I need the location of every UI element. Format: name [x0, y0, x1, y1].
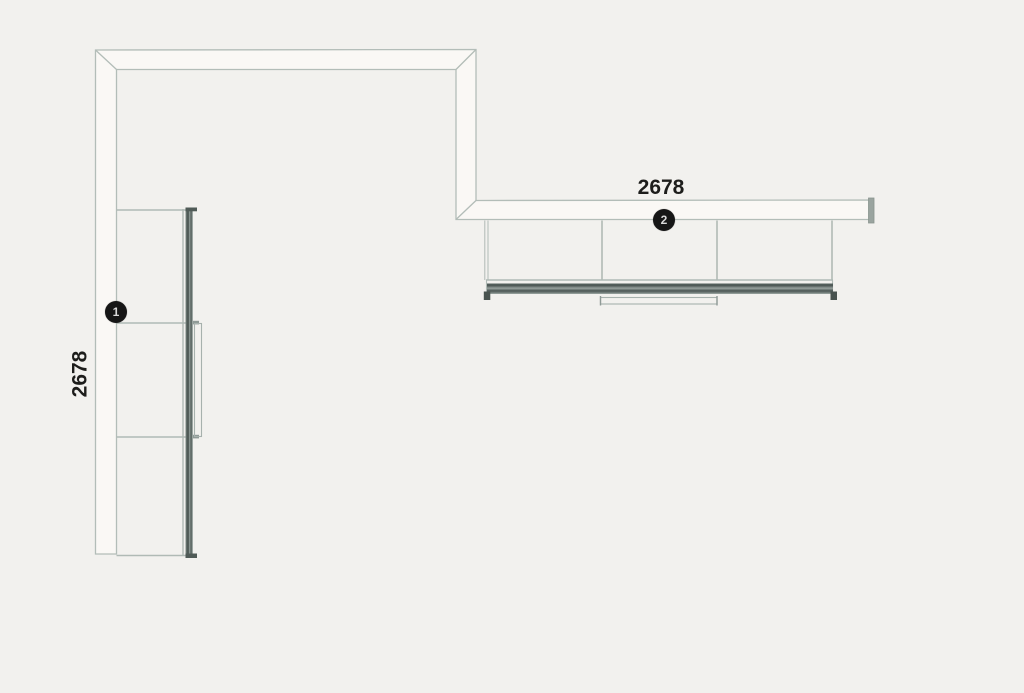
dimension-label-left: 2678	[70, 351, 91, 398]
left-unit	[117, 208, 202, 559]
frame-band-outline	[96, 50, 874, 555]
frame-miter-lines	[96, 50, 477, 220]
right-unit	[484, 221, 837, 306]
right-end-cap	[869, 198, 875, 223]
position-marker-1: 1	[105, 301, 127, 323]
right-unit-bracket	[601, 296, 718, 306]
dimension-label-top: 2678	[638, 177, 685, 198]
position-marker-2: 2	[653, 209, 675, 231]
left-unit-bracket	[195, 324, 202, 437]
right-unit-rail	[487, 284, 833, 295]
wardrobe-plan-drawing	[0, 0, 1024, 693]
frame-band	[96, 50, 875, 555]
left-unit-rail	[186, 208, 194, 558]
left-unit-shelf-lines	[117, 210, 187, 556]
wardrobe-plan-canvas: 2678 2678 1 2	[0, 0, 1024, 693]
